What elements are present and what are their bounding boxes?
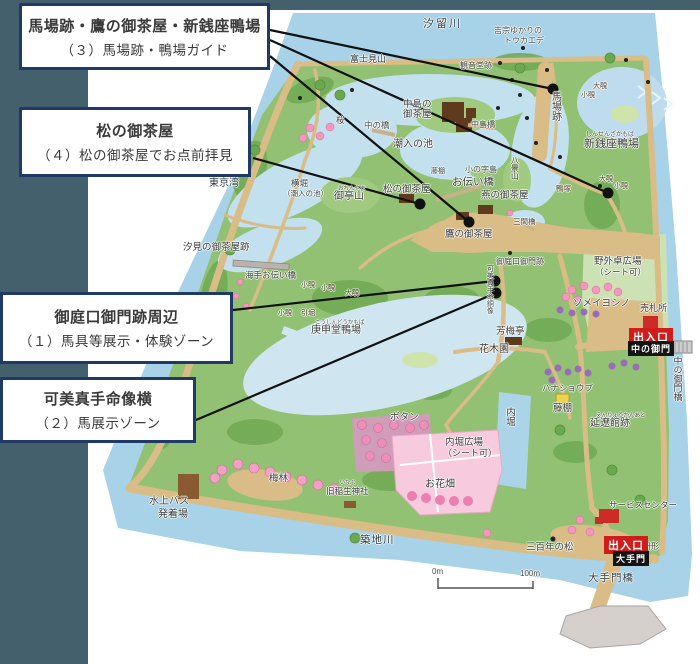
label-tsubame-teahouse: 燕の御茶屋 [481, 191, 529, 201]
label-taka-teahouse: 鷹の御茶屋 [445, 230, 493, 240]
scale-end-label: 100m [520, 570, 540, 578]
label-lookout-large-north: 大覗 [593, 83, 607, 90]
label-otemon-bridge: 大手門橋 [588, 573, 634, 584]
label-ticket-office: 売札所 [640, 304, 667, 313]
label-water-bus-line2: 発着場 [158, 510, 188, 521]
label-lookout-small-w3: 小覗 [278, 310, 292, 317]
label-picnic-area: 野外卓広場 [594, 257, 642, 267]
label-shiodome-river: 汐留川 [423, 19, 462, 31]
callout-subtitle: （４）松の御茶屋でお点前拝見 [37, 144, 233, 164]
park-guide-map: 汐留川 吉宗ゆかりの トウカエデ 馬場跡 しんせんざかもば 新銭座鴨場 大覗 小… [0, 0, 700, 664]
label-picnic-area-sub: （シート可） [595, 268, 646, 277]
label-hikibori: 引堀 [301, 310, 315, 317]
label-inabu-shrine: 旧稲生神社 [326, 487, 369, 496]
callout-box-oniwaguchi: 御庭口御門跡周辺 （１）馬具等展示・体験ゾーン [0, 292, 233, 364]
label-wisteria-north: 藤棚 [431, 168, 445, 175]
label-iris: ハナショウブ [542, 384, 593, 393]
label-lookout-small-east: 小覗 [614, 183, 628, 190]
wisteria-trellis-marker [556, 394, 569, 403]
label-nakajima-bridge: 中島橋 [471, 121, 495, 129]
label-sangen-bridge: 三間橋 [513, 218, 536, 226]
label-shinsenza-duck-site: 新銭座鴨場 [584, 139, 639, 151]
label-service-center: サービスセンター [609, 501, 677, 510]
label-enryokan-site: 延遼館跡 [590, 419, 630, 430]
label-lookout-large-east: 大覗 [599, 176, 613, 183]
label-cherry: 桜 [336, 116, 345, 125]
label-peony: ボタン [390, 413, 419, 423]
label-tokyo-bay: 東京湾 [209, 179, 239, 190]
label-lookout-small-w1: 小覗 [301, 282, 315, 289]
gate-badge-otemon: 大手門 [613, 551, 649, 566]
label-plum-grove: 梅林 [269, 474, 288, 484]
callout-subtitle: （３）馬場跡・鴨場ガイド [61, 39, 229, 59]
label-yoshimune-line2: トウカエデ [504, 37, 544, 45]
callout-title: 御庭口御門跡周辺 [54, 306, 178, 327]
label-hakkei-hill: 八景山 [510, 156, 518, 180]
label-lookout-small-w2: 小覗 [321, 285, 335, 292]
label-wisteria-south: 藤棚 [553, 404, 572, 414]
label-otsutai-bridge: お伝い橋 [452, 177, 494, 188]
label-water-bus-line1: 水上バス [149, 497, 189, 508]
label-somei-yoshino: ソメイヨシノ [573, 299, 630, 309]
label-yokobori-sub: （潮入の池） [283, 190, 328, 198]
label-kannondo-site: 観音堂跡 [460, 62, 492, 70]
callout-box-matsu-teahouse: 松の御茶屋 （４）松の御茶屋でお点前拝見 [19, 107, 251, 177]
callout-title: 可美真手命像横 [44, 388, 153, 409]
callout-subtitle: （２）馬展示ゾーン [35, 412, 160, 432]
label-lookout-small-north: 小覗 [581, 92, 595, 99]
label-inner-moat-plaza: 内堀広場 [445, 438, 483, 448]
scale-start-label: 0m [432, 568, 443, 576]
label-flowering-tree-garden: 花木園 [479, 345, 509, 356]
label-flower-field: お花畑 [425, 480, 455, 491]
label-koshindo-duck-site: 庚申堂鴨場 [311, 326, 361, 337]
label-300year-pine: 三百年の松 [526, 543, 574, 553]
label-umite-otsutai-bridge: 海手お伝い橋 [245, 271, 296, 280]
label-inner-moat-plaza-sub: （シート可） [443, 449, 497, 458]
callout-title: 松の御茶屋 [96, 120, 174, 141]
label-tidal-pond: 潮入の池 [393, 140, 433, 151]
label-tsukiji-river: 築地川 [360, 535, 395, 546]
callout-box-baba-taka-shinsenza: 馬場跡・鷹の御茶屋・新銭座鴨場 （３）馬場跡・鴨場ガイド [19, 3, 270, 70]
gate-badge-nakanogomon: 中の御門 [628, 341, 674, 356]
label-yoshimune-line1: 吉宗ゆかりの [494, 27, 542, 35]
label-inner-moat: 内堀 [504, 407, 514, 426]
label-kamimate-statue: 可美真手命銅像 [486, 265, 493, 314]
callout-subtitle: （１）馬具等展示・体験ゾーン [19, 330, 214, 350]
label-duck-mound: 鴨塚 [556, 185, 571, 193]
label-hobaitei: 芳梅亭 [496, 327, 525, 337]
label-oniwaguchi-gate-site: 御庭口御門跡 [496, 258, 544, 266]
label-naka-bridge: 中の橋 [364, 121, 390, 130]
label-fujimi-hill: 富士見山 [350, 55, 386, 64]
label-ochin-hill: 御亭山 [334, 192, 364, 203]
callout-title: 馬場跡・鷹の御茶屋・新銭座鴨場 [28, 15, 261, 36]
label-horse-track-site: 馬場跡 [549, 91, 560, 121]
label-shiomi-teahouse-site: 汐見の御茶屋跡 [183, 243, 250, 253]
label-konoji-island: 小の字島 [465, 166, 497, 174]
label-yokobori: 横堀 [291, 179, 308, 188]
label-matsu-teahouse: 松の御茶屋 [383, 185, 431, 195]
label-nakanogomon-bridge: 中の御門橋 [672, 356, 681, 401]
label-lookout-large-west: 大覗 [345, 290, 359, 297]
callout-box-kamimate: 可美真手命像横 （２）馬展示ゾーン [0, 377, 196, 443]
label-nakajima-teahouse-line2: 御茶屋 [403, 110, 432, 120]
